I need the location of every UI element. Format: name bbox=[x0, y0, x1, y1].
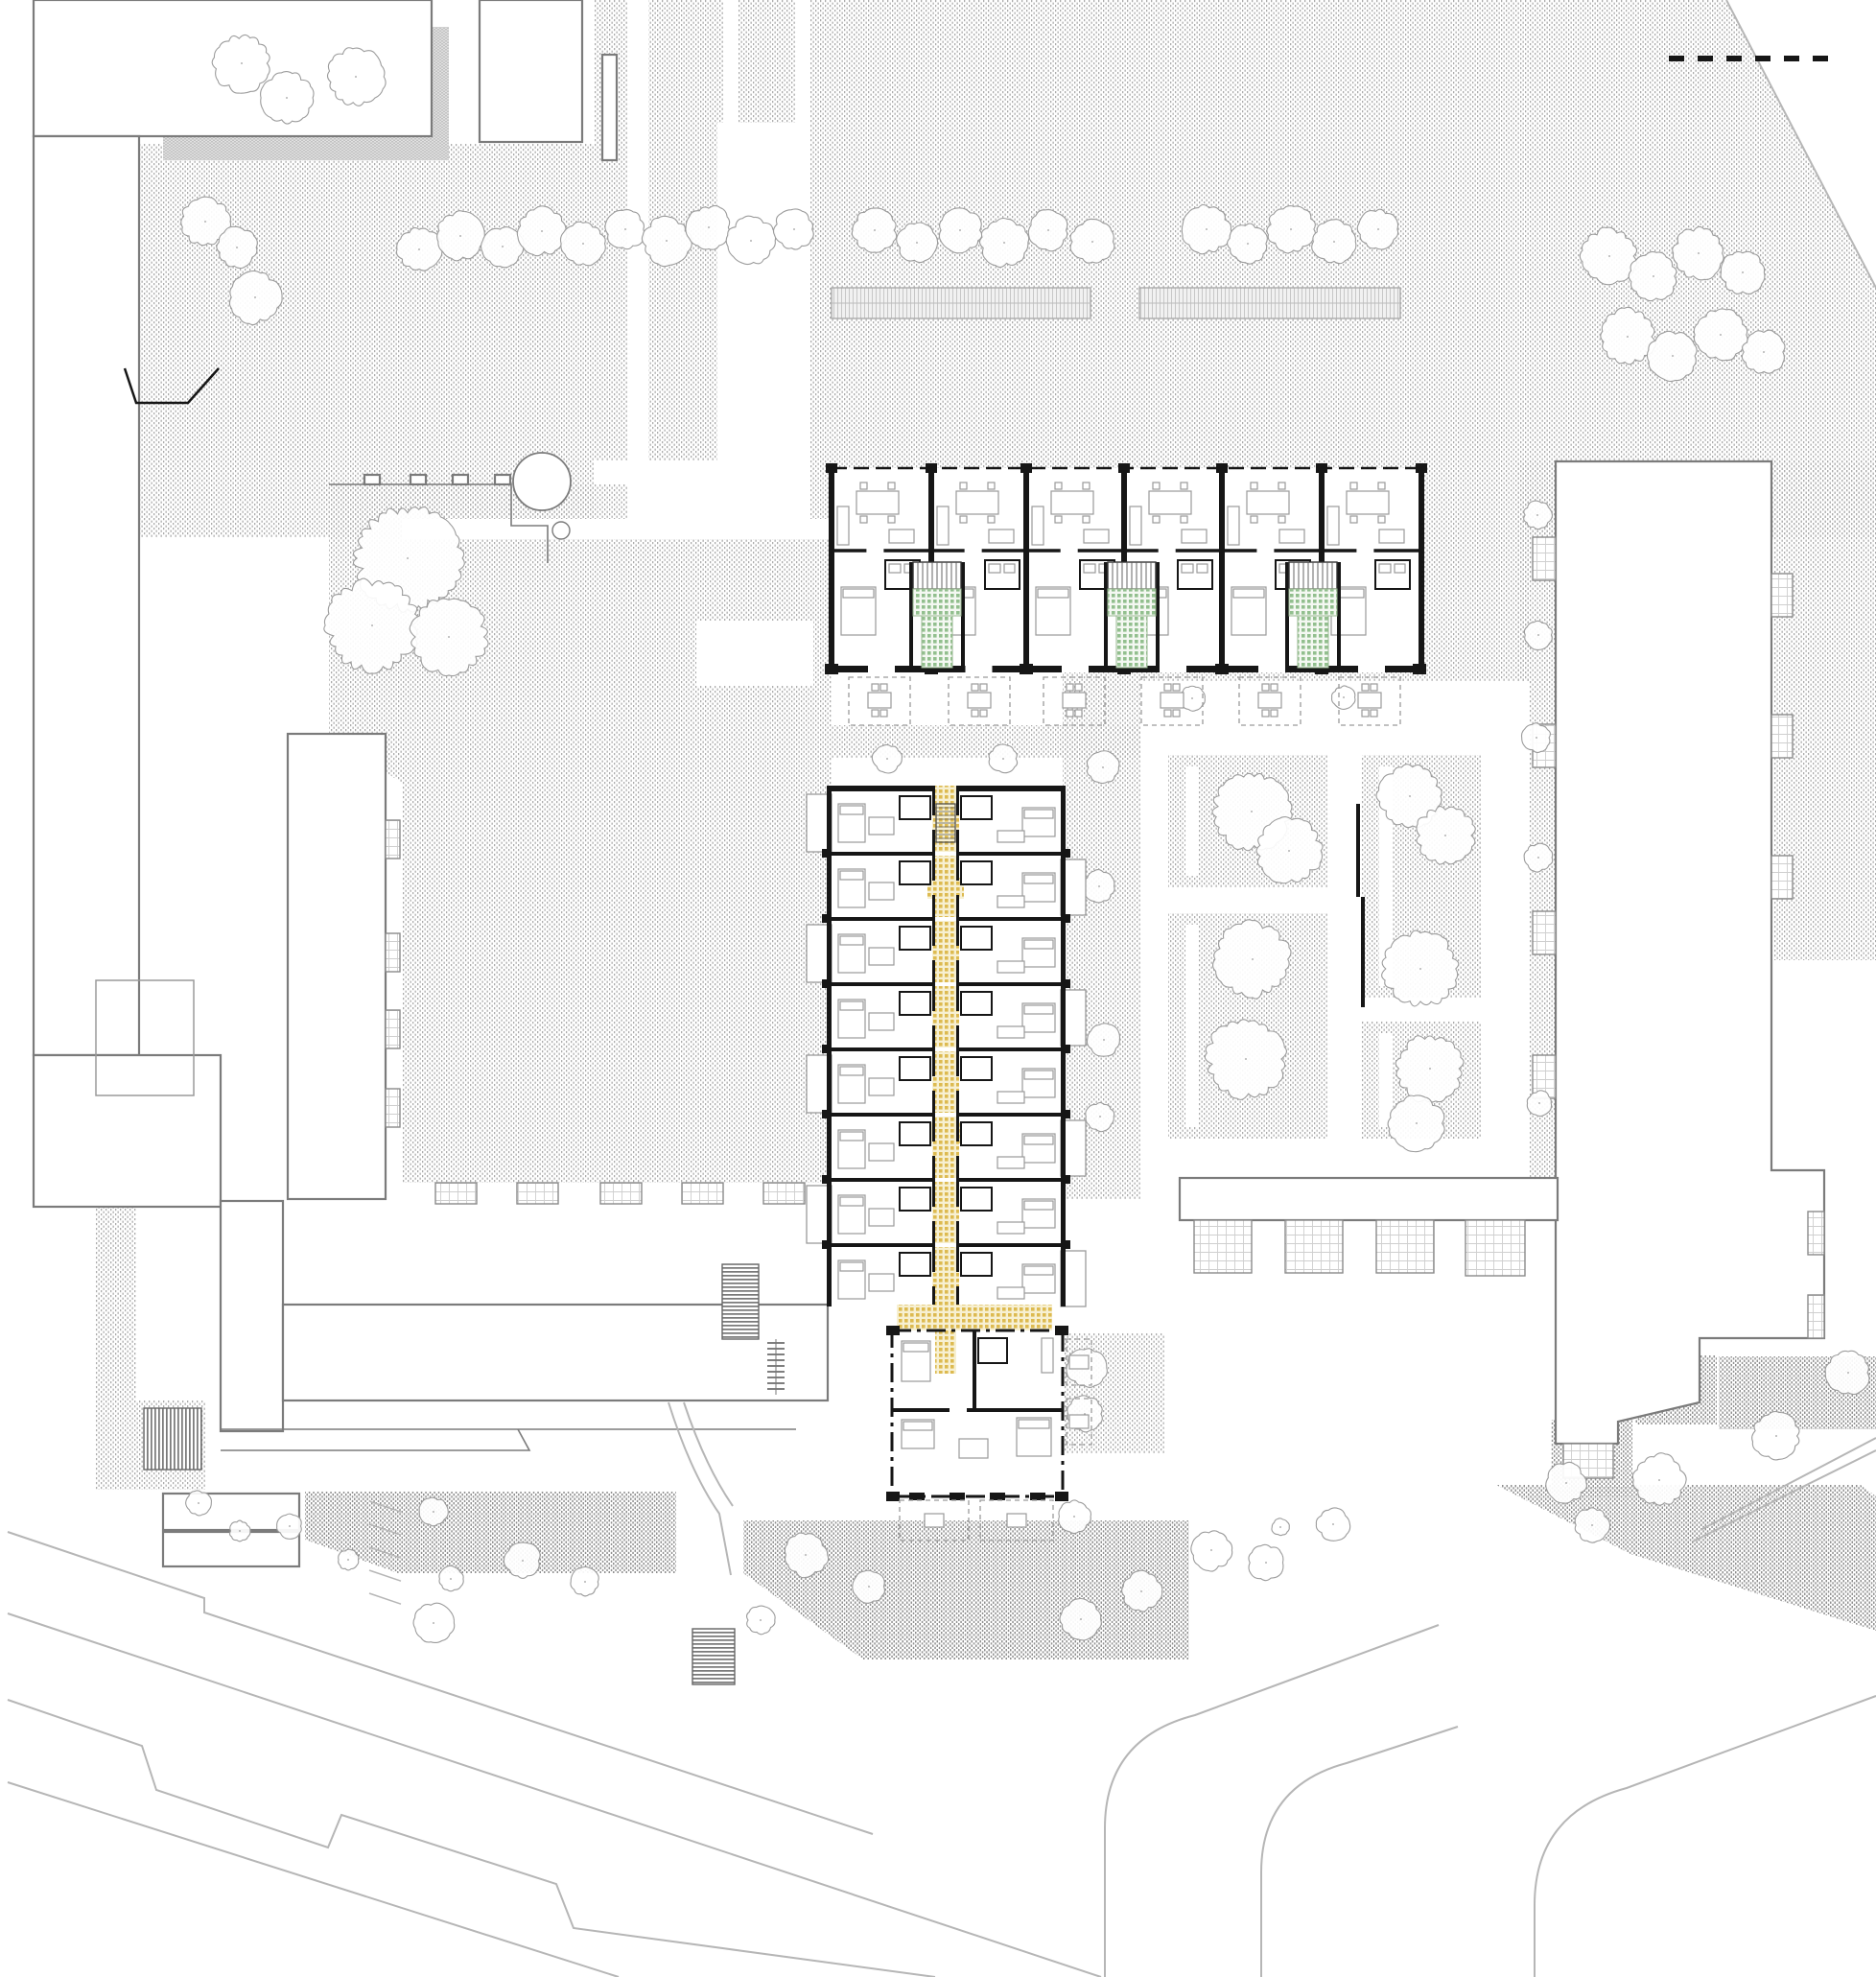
tree-center-dot bbox=[1409, 795, 1411, 797]
pier-tick bbox=[1413, 664, 1426, 674]
bed-pillow bbox=[1024, 1005, 1053, 1014]
chair bbox=[1262, 710, 1269, 717]
context-building bbox=[34, 136, 139, 1055]
corridor-door bbox=[956, 946, 959, 960]
door-opening bbox=[1160, 666, 1186, 672]
bed-pillow bbox=[1038, 589, 1068, 598]
corridor-door bbox=[932, 946, 935, 960]
context-building bbox=[602, 55, 617, 160]
chair bbox=[988, 516, 995, 523]
bathroom bbox=[961, 1188, 992, 1211]
chair bbox=[1164, 710, 1171, 717]
tree-center-dot bbox=[450, 1578, 452, 1580]
wc bbox=[1182, 564, 1193, 573]
chair bbox=[1181, 516, 1187, 523]
tree-center-dot bbox=[1591, 1524, 1593, 1526]
corridor-wall bbox=[932, 788, 935, 1305]
table bbox=[1358, 693, 1381, 708]
chair bbox=[860, 516, 867, 523]
tree-center-dot bbox=[1265, 1562, 1267, 1564]
paved-walk-hatch bbox=[432, 27, 449, 160]
corridor-door bbox=[956, 1272, 959, 1286]
basin bbox=[1197, 564, 1208, 573]
stair-core-landing bbox=[913, 589, 961, 616]
bathroom bbox=[961, 1122, 992, 1145]
tree-center-dot bbox=[1290, 228, 1292, 230]
table bbox=[869, 1143, 894, 1161]
chair bbox=[960, 516, 967, 523]
bed-pillow bbox=[1024, 1071, 1053, 1079]
chair bbox=[888, 516, 895, 523]
tree-center-dot bbox=[1091, 241, 1093, 243]
bed-pillow bbox=[903, 1422, 932, 1430]
stair-core-corridor bbox=[922, 616, 952, 668]
bathroom bbox=[900, 1253, 930, 1276]
bed-pillow bbox=[840, 1001, 863, 1010]
tree-center-dot bbox=[1538, 1102, 1540, 1104]
chair bbox=[1271, 684, 1278, 691]
street-kerb bbox=[8, 1700, 935, 1977]
table bbox=[869, 1209, 894, 1226]
tree-center-dot bbox=[1210, 1549, 1212, 1551]
tree-center-dot bbox=[959, 229, 961, 231]
bathroom bbox=[961, 1253, 992, 1276]
tree-center-dot bbox=[286, 97, 288, 99]
chair bbox=[880, 684, 887, 691]
bed-pillow bbox=[903, 1343, 928, 1352]
tree-center-dot bbox=[582, 243, 584, 245]
corridor-gap bbox=[933, 1243, 958, 1247]
bathroom bbox=[900, 1057, 930, 1080]
tree-center-dot bbox=[448, 636, 450, 638]
fence-dash bbox=[1698, 56, 1713, 61]
table bbox=[956, 491, 998, 514]
bed-pillow bbox=[1024, 875, 1053, 883]
parapet-notch bbox=[453, 475, 468, 484]
unit-wall bbox=[892, 1408, 1063, 1412]
fence-dash bbox=[1669, 56, 1684, 61]
corridor-door bbox=[956, 881, 959, 895]
bed-pillow bbox=[840, 871, 863, 880]
street-kerb bbox=[1261, 1727, 1458, 1977]
door-opening bbox=[1258, 666, 1285, 672]
terrace-grid bbox=[763, 1183, 805, 1204]
chair bbox=[1362, 684, 1369, 691]
bathroom bbox=[961, 992, 992, 1015]
sofa bbox=[997, 1287, 1024, 1299]
bed-pillow bbox=[1233, 589, 1264, 598]
west-wall bbox=[827, 788, 832, 1306]
chair bbox=[980, 684, 987, 691]
chair bbox=[960, 482, 967, 489]
sofa bbox=[997, 1157, 1024, 1168]
chair bbox=[1083, 516, 1090, 523]
paving-area bbox=[96, 1207, 136, 1490]
tree-center-dot bbox=[624, 228, 626, 230]
tree-center-dot bbox=[666, 240, 668, 242]
wc bbox=[1379, 564, 1391, 573]
sofa bbox=[1130, 506, 1141, 545]
corridor-door bbox=[956, 815, 959, 830]
path-plaza bbox=[717, 123, 810, 470]
bed-pillow bbox=[840, 1067, 863, 1075]
tree-center-dot bbox=[1252, 958, 1254, 960]
table bbox=[869, 817, 894, 835]
corridor-wall bbox=[956, 788, 959, 1305]
chair bbox=[1055, 516, 1062, 523]
corridor-door bbox=[932, 881, 935, 895]
chair bbox=[1251, 516, 1257, 523]
chair bbox=[1153, 482, 1160, 489]
tree-center-dot bbox=[1416, 1122, 1418, 1124]
chair bbox=[1075, 710, 1082, 717]
chair bbox=[972, 684, 978, 691]
context-building bbox=[34, 1055, 221, 1207]
sofa bbox=[997, 1222, 1024, 1234]
table bbox=[1063, 693, 1086, 708]
chair bbox=[872, 710, 879, 717]
corner-tick bbox=[886, 1326, 900, 1335]
pier-tick bbox=[825, 664, 838, 674]
sofa bbox=[997, 1026, 1024, 1038]
chair bbox=[1362, 710, 1369, 717]
terrace-grid bbox=[1376, 1220, 1434, 1273]
corridor-door bbox=[932, 1207, 935, 1221]
sofa bbox=[997, 961, 1024, 973]
sofa bbox=[1042, 1338, 1053, 1373]
pier-tick bbox=[1416, 463, 1427, 473]
corridor-gap bbox=[933, 1178, 958, 1182]
bed-pillow bbox=[840, 936, 863, 945]
corridor-door bbox=[956, 1076, 959, 1091]
corner-tick bbox=[1055, 1492, 1068, 1501]
chair bbox=[980, 710, 987, 717]
terrace-grid bbox=[1771, 715, 1793, 758]
sofa bbox=[997, 831, 1024, 842]
fence-dash bbox=[1813, 56, 1828, 61]
pier-tick bbox=[926, 463, 937, 473]
pier-tick bbox=[1216, 463, 1228, 473]
bathroom bbox=[900, 1188, 930, 1211]
door-opening bbox=[1358, 666, 1385, 672]
terrace-grid bbox=[1771, 574, 1793, 617]
tree-center-dot bbox=[204, 221, 206, 223]
ramp-stairs bbox=[144, 1408, 201, 1470]
context-outline bbox=[221, 1429, 529, 1450]
sofa bbox=[1228, 506, 1239, 545]
bathroom bbox=[900, 861, 930, 884]
tree-center-dot bbox=[418, 248, 420, 250]
tree-center-dot bbox=[1206, 228, 1208, 230]
chair bbox=[1075, 684, 1082, 691]
tree-center-dot bbox=[355, 76, 357, 78]
tree-center-dot bbox=[1444, 835, 1446, 836]
terrace-grid bbox=[435, 1183, 477, 1204]
stair-core-corridor bbox=[1116, 616, 1147, 668]
corner-tick bbox=[1055, 1326, 1068, 1335]
chair bbox=[988, 482, 995, 489]
pier-tick bbox=[1020, 664, 1033, 674]
terrace-grid bbox=[517, 1183, 558, 1204]
tree-center-dot bbox=[1419, 968, 1421, 970]
corridor-gap bbox=[933, 982, 958, 986]
table bbox=[869, 1013, 894, 1030]
chair bbox=[1350, 482, 1357, 489]
chair bbox=[880, 710, 887, 717]
tree-icon bbox=[1191, 1531, 1232, 1571]
tree-center-dot bbox=[868, 1586, 870, 1588]
street-kerb bbox=[1105, 1625, 1439, 1977]
tree-icon bbox=[1825, 1351, 1869, 1394]
pier-tick bbox=[826, 463, 837, 473]
tree-center-dot bbox=[236, 247, 238, 248]
tree-center-dot bbox=[708, 226, 710, 228]
bed-pillow bbox=[840, 1262, 863, 1271]
corridor-t-band bbox=[897, 1305, 1052, 1330]
terrace-grid bbox=[386, 1010, 400, 1048]
tree-center-dot bbox=[347, 1559, 349, 1561]
door-opening bbox=[966, 666, 993, 672]
tree-center-dot bbox=[1653, 275, 1654, 277]
tree-center-dot bbox=[1608, 255, 1610, 257]
paved-walk-hatch bbox=[163, 136, 449, 160]
tree-center-dot bbox=[1279, 1526, 1281, 1528]
stair-core-corridor bbox=[1298, 616, 1328, 668]
bathroom bbox=[961, 1057, 992, 1080]
corridor-door bbox=[932, 1076, 935, 1091]
tree-center-dot bbox=[522, 1560, 524, 1562]
terrace-grid bbox=[1808, 1212, 1824, 1255]
tree-center-dot bbox=[1672, 355, 1674, 357]
tree-center-dot bbox=[916, 242, 918, 244]
tree-center-dot bbox=[1537, 857, 1539, 859]
table bbox=[1149, 491, 1191, 514]
table bbox=[1161, 693, 1184, 708]
stair-core-landing bbox=[1289, 589, 1337, 616]
tree-center-dot bbox=[1377, 228, 1379, 230]
bed-pillow bbox=[1024, 810, 1053, 818]
door-opening bbox=[868, 666, 895, 672]
bed-pillow bbox=[1024, 1266, 1053, 1275]
tree-center-dot bbox=[1536, 737, 1537, 739]
wc bbox=[989, 564, 1000, 573]
party-wall bbox=[1023, 468, 1029, 671]
chair bbox=[1251, 482, 1257, 489]
pier-tick bbox=[990, 1493, 1005, 1500]
tree-center-dot bbox=[1251, 811, 1253, 812]
terrace-grid bbox=[600, 1183, 642, 1204]
table bbox=[1258, 693, 1281, 708]
tree-center-dot bbox=[1333, 241, 1335, 243]
bathroom bbox=[900, 796, 930, 819]
table bbox=[1069, 1415, 1089, 1428]
corridor-gap bbox=[933, 1047, 958, 1051]
party-wall bbox=[1219, 468, 1225, 671]
chair bbox=[972, 710, 978, 717]
chair bbox=[872, 684, 879, 691]
tree-center-dot bbox=[239, 1530, 241, 1532]
pond bbox=[513, 453, 571, 510]
bathroom bbox=[900, 927, 930, 950]
chair bbox=[1173, 710, 1180, 717]
corridor-gap bbox=[933, 917, 958, 921]
chair bbox=[1173, 684, 1180, 691]
corner-tick bbox=[886, 1492, 900, 1501]
desk bbox=[1182, 530, 1207, 543]
bed-pillow bbox=[840, 1132, 863, 1141]
corridor-door bbox=[932, 1011, 935, 1025]
sofa bbox=[997, 1092, 1024, 1103]
street-kerb bbox=[684, 1402, 733, 1506]
tree-center-dot bbox=[750, 240, 752, 242]
tree-center-dot bbox=[1191, 697, 1193, 699]
desk bbox=[1379, 530, 1404, 543]
paving-area bbox=[305, 1492, 676, 1573]
site-plan-page bbox=[0, 0, 1876, 1977]
street-kerb bbox=[1535, 1696, 1876, 1977]
terrace-grid bbox=[1285, 1220, 1343, 1273]
parapet-notch bbox=[495, 475, 510, 484]
corridor-door bbox=[956, 1207, 959, 1221]
table bbox=[1051, 491, 1093, 514]
chair bbox=[1371, 710, 1377, 717]
corridor-door bbox=[932, 815, 935, 830]
garden-plot-path bbox=[1185, 925, 1199, 1127]
path-plaza bbox=[723, 0, 739, 125]
tree-center-dot bbox=[1847, 1372, 1849, 1374]
chair bbox=[1271, 710, 1278, 717]
table bbox=[1347, 491, 1389, 514]
desk bbox=[889, 530, 914, 543]
pier-tick bbox=[1020, 463, 1032, 473]
tree-center-dot bbox=[1720, 334, 1722, 336]
tree-center-dot bbox=[1247, 243, 1249, 245]
door-opening bbox=[950, 1408, 967, 1412]
tree-center-dot bbox=[1763, 351, 1765, 353]
table bbox=[1007, 1514, 1026, 1527]
chair bbox=[1153, 516, 1160, 523]
tree-center-dot bbox=[459, 235, 461, 237]
tree-center-dot bbox=[1537, 634, 1539, 636]
chair bbox=[1262, 684, 1269, 691]
tree-center-dot bbox=[793, 228, 795, 230]
terrace-grid bbox=[1533, 537, 1556, 580]
table bbox=[959, 1439, 988, 1458]
bathroom bbox=[900, 1122, 930, 1145]
tree-center-dot bbox=[1429, 1068, 1431, 1070]
chair bbox=[1164, 684, 1171, 691]
chair bbox=[888, 482, 895, 489]
tree-center-dot bbox=[1775, 1435, 1777, 1437]
tree-center-dot bbox=[1343, 696, 1345, 698]
tree-center-dot bbox=[433, 1622, 434, 1624]
table bbox=[869, 1274, 894, 1291]
corridor-door bbox=[956, 1141, 959, 1156]
corridor-door bbox=[932, 1141, 935, 1156]
tree-center-dot bbox=[584, 1581, 586, 1583]
bed-pillow bbox=[1024, 940, 1053, 949]
sofa bbox=[997, 896, 1024, 907]
end-wall bbox=[1419, 468, 1424, 671]
basin bbox=[1395, 564, 1405, 573]
chair bbox=[1378, 516, 1385, 523]
tree-center-dot bbox=[1103, 1039, 1105, 1041]
tree-center-dot bbox=[874, 229, 876, 231]
end-wall bbox=[829, 468, 834, 671]
tree-center-dot bbox=[1627, 336, 1629, 338]
terrace-grid bbox=[386, 1089, 400, 1127]
tree-center-dot bbox=[1099, 1116, 1101, 1118]
pier-tick bbox=[1030, 1493, 1045, 1500]
tree-center-dot bbox=[241, 62, 243, 64]
tree-center-dot bbox=[433, 1511, 434, 1513]
chair bbox=[1278, 516, 1285, 523]
desk bbox=[1279, 530, 1304, 543]
sofa bbox=[1327, 506, 1339, 545]
sofa bbox=[837, 506, 849, 545]
pier-tick bbox=[909, 1493, 925, 1500]
chair bbox=[1371, 684, 1377, 691]
tree-center-dot bbox=[198, 1502, 199, 1504]
table bbox=[856, 491, 899, 514]
tree-center-dot bbox=[886, 758, 888, 760]
terrace-grid bbox=[1771, 856, 1793, 899]
path-plaza bbox=[796, 0, 810, 125]
tree-center-dot bbox=[1047, 229, 1049, 231]
site-plan-canvas bbox=[0, 0, 1876, 1977]
pier-tick bbox=[950, 1493, 965, 1500]
bed-pillow bbox=[843, 589, 874, 598]
bed-pillow bbox=[840, 1197, 863, 1206]
table bbox=[868, 693, 891, 708]
building-central-bar bbox=[807, 786, 1086, 1330]
table bbox=[869, 883, 894, 900]
path-plaza bbox=[627, 0, 648, 539]
corridor-gap bbox=[933, 852, 958, 856]
corridor-gap bbox=[933, 1113, 958, 1117]
table bbox=[1247, 491, 1289, 514]
tree-center-dot bbox=[760, 1619, 762, 1621]
tree-center-dot bbox=[1565, 1482, 1567, 1484]
chair bbox=[1181, 482, 1187, 489]
table bbox=[1069, 1355, 1089, 1369]
tree-center-dot bbox=[1080, 1618, 1082, 1620]
ramp-stairs bbox=[692, 1629, 735, 1684]
unit-wall bbox=[973, 1330, 976, 1408]
desk bbox=[989, 530, 1014, 543]
tree-center-dot bbox=[1288, 850, 1290, 852]
ramp-stairs bbox=[722, 1264, 759, 1339]
terrace-grid bbox=[386, 933, 400, 972]
tree-center-dot bbox=[1536, 514, 1538, 516]
bathroom bbox=[978, 1338, 1007, 1363]
context-building bbox=[288, 734, 386, 1199]
tree-center-dot bbox=[407, 557, 409, 559]
door-opening bbox=[1062, 666, 1089, 672]
tree-center-dot bbox=[371, 624, 373, 626]
desk bbox=[1084, 530, 1109, 543]
path-plaza bbox=[696, 621, 813, 686]
tree-center-dot bbox=[1742, 271, 1744, 273]
table bbox=[869, 948, 894, 965]
basin bbox=[1004, 564, 1015, 573]
path-plaza bbox=[403, 519, 834, 539]
tree-center-dot bbox=[1002, 758, 1004, 760]
tree-center-dot bbox=[254, 296, 256, 298]
context-building bbox=[1180, 1178, 1558, 1220]
chair bbox=[1067, 684, 1073, 691]
sofa bbox=[1032, 506, 1044, 545]
